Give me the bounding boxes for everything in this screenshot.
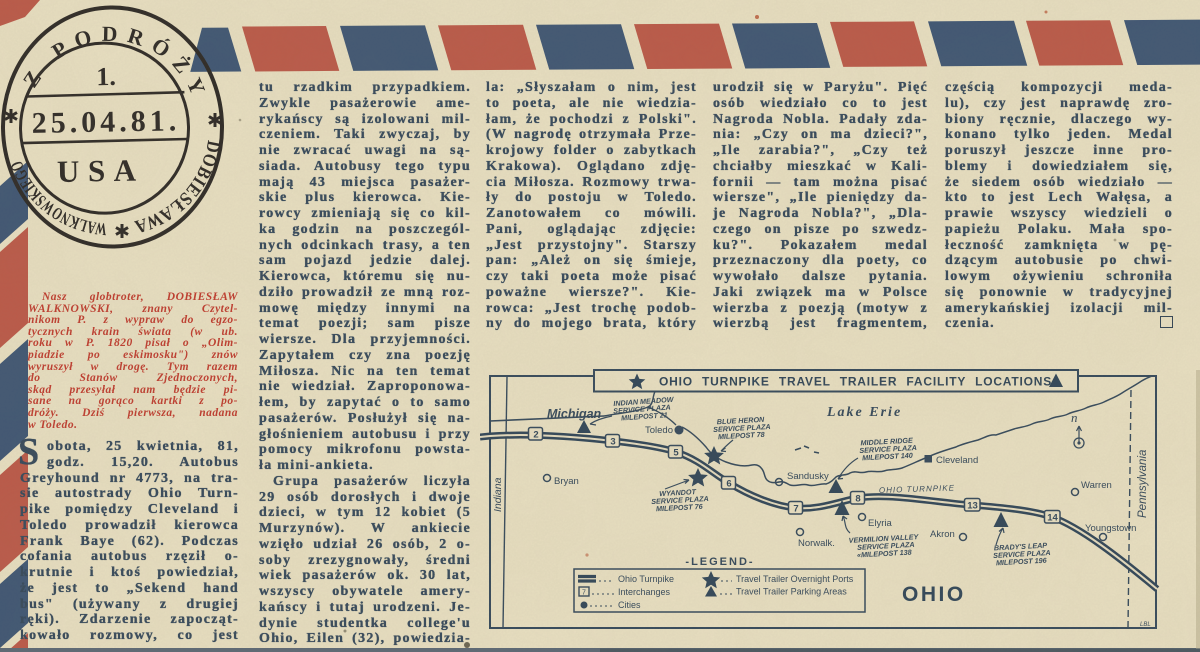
svg-text:Bryan: Bryan [554,476,579,487]
svg-text:2: 2 [533,430,538,441]
svg-text:Travel Trailer Overnight Ports: Travel Trailer Overnight Ports [736,574,854,584]
svg-text:OHIO TURNPIKE TRAVEL TRAILER F: OHIO TURNPIKE TRAVEL TRAILER FACILITY LO… [659,375,1052,389]
svg-text:MILEPOST 76: MILEPOST 76 [656,502,704,513]
svg-text:OHIO TURNPIKE: OHIO TURNPIKE [879,483,955,495]
svg-text:LBL: LBL [1140,622,1151,628]
svg-text:Toledo: Toledo [645,425,673,436]
svg-text:Travel Trailer Parking Areas: Travel Trailer Parking Areas [736,587,847,597]
svg-text:-LEGEND-: -LEGEND- [685,556,754,568]
svg-text:25.04.81.: 25.04.81. [31,104,180,140]
svg-text:Pennsylvania: Pennsylvania [1137,450,1149,518]
svg-text:Norwalk.: Norwalk. [798,538,835,549]
svg-text:Cleveland: Cleveland [936,455,978,466]
svg-text:Elyria: Elyria [868,518,892,529]
svg-text:MILEPOST 140: MILEPOST 140 [862,451,913,463]
svg-text:Interchanges: Interchanges [618,587,671,597]
svg-text:14: 14 [1047,513,1058,524]
svg-text:Michigan: Michigan [547,407,602,421]
svg-text:5: 5 [673,448,679,459]
svg-text:13: 13 [967,501,978,512]
svg-text:Lake Erie: Lake Erie [826,405,902,420]
svg-text:3: 3 [610,437,615,448]
svg-text:8: 8 [855,494,860,505]
svg-text:Cities: Cities [618,600,641,610]
svg-text:7: 7 [582,590,586,597]
svg-text:MILEPOST 21: MILEPOST 21 [621,410,668,422]
svg-text:1.: 1. [96,62,116,91]
svg-text:Youngstown: Youngstown [1085,523,1136,534]
svg-text:OHIO: OHIO [902,583,966,606]
svg-text:Indiana: Indiana [492,477,504,512]
svg-text:Ohio Turnpike: Ohio Turnpike [618,574,674,584]
svg-text:MILEPOST 196: MILEPOST 196 [996,556,1048,568]
svg-text:7: 7 [793,504,798,515]
svg-text:Sandusky: Sandusky [787,471,829,482]
svg-text:Akron: Akron [930,529,955,540]
svg-text:USA: USA [57,152,145,189]
svg-text:Warren: Warren [1081,480,1112,491]
svg-text:6: 6 [726,479,731,490]
svg-text:«MILEPOST 138: «MILEPOST 138 [857,548,912,560]
svg-text:MILEPOST 78: MILEPOST 78 [718,430,765,441]
svg-text:n: n [1071,410,1078,425]
